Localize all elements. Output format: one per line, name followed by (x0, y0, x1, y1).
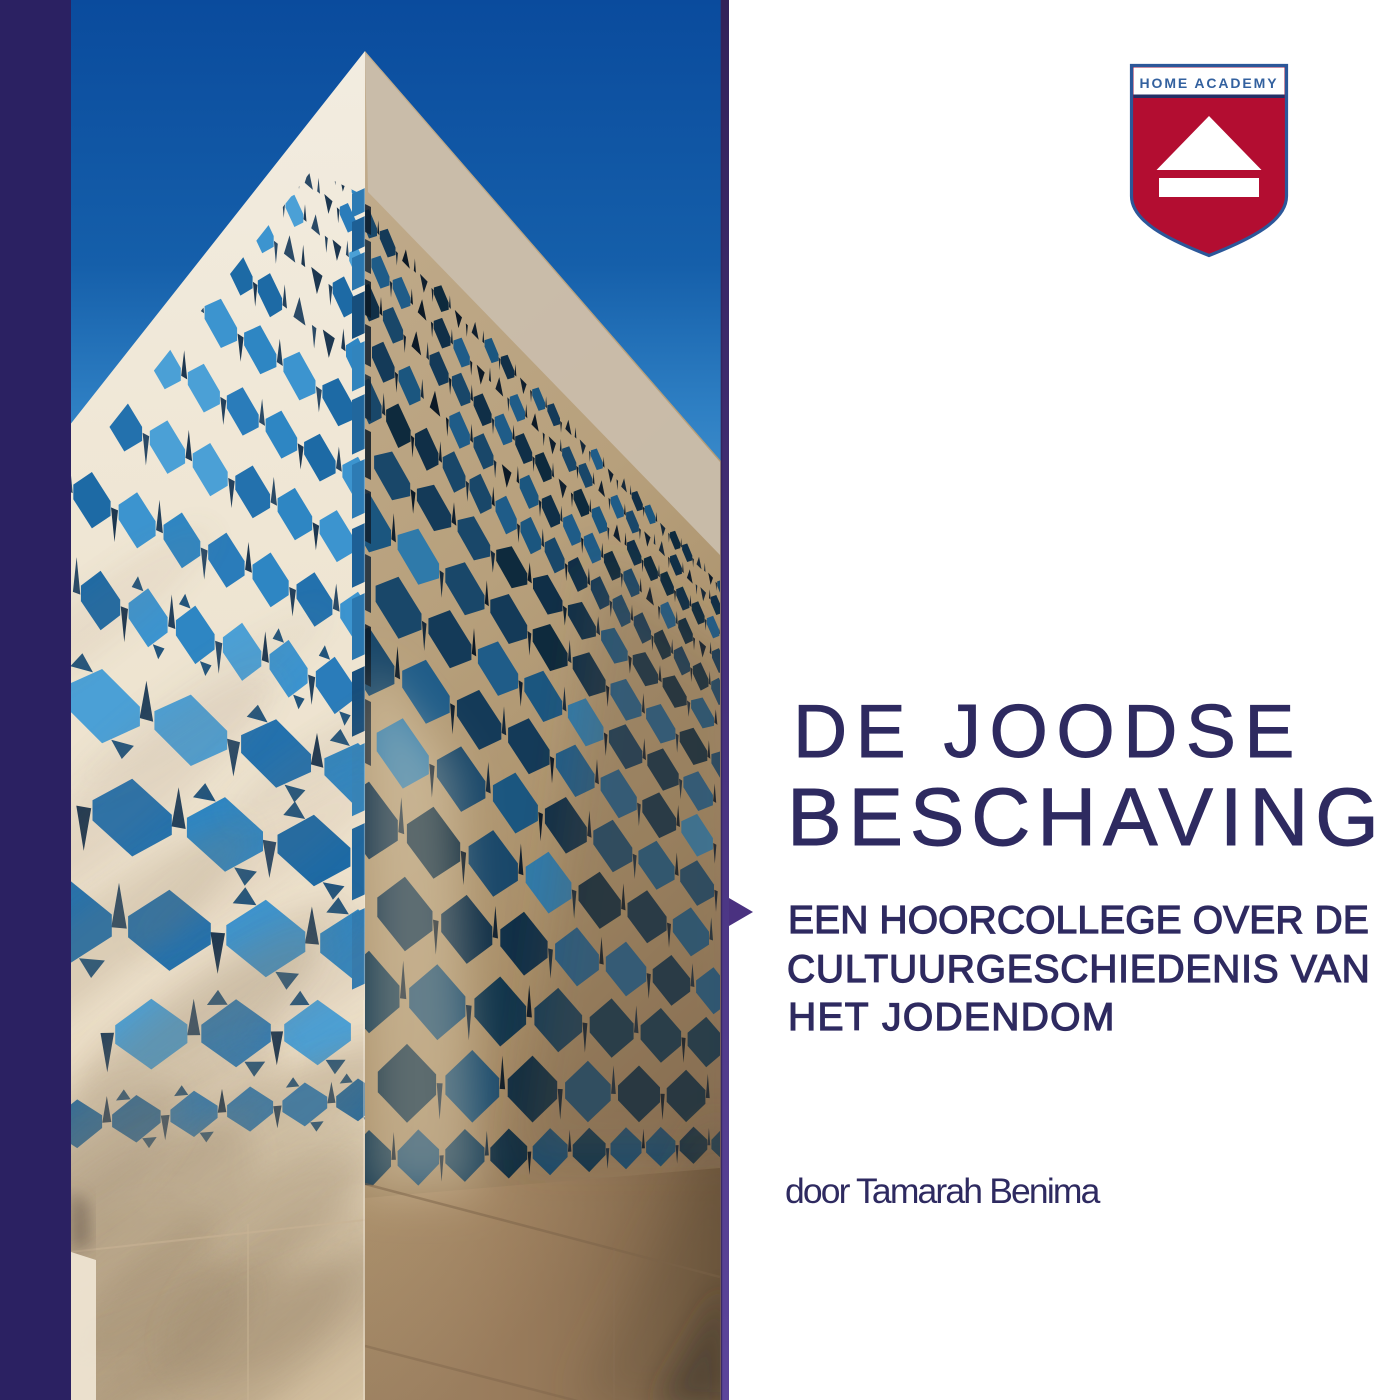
svg-text:HOME ACADEMY: HOME ACADEMY (1140, 75, 1279, 91)
